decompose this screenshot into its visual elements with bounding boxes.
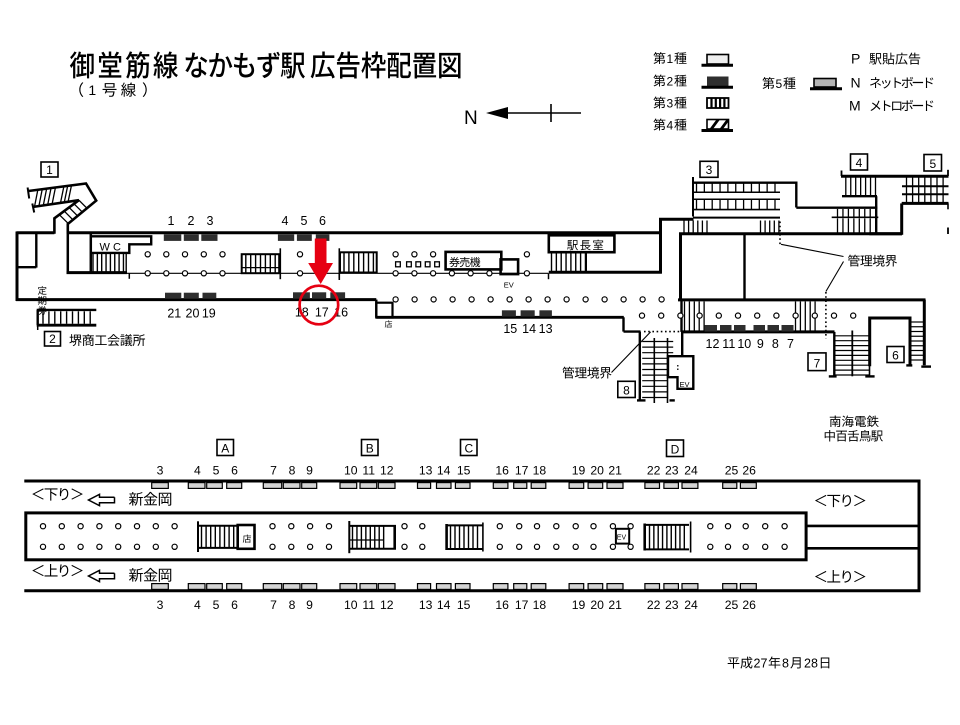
svg-text:2: 2 [49,332,56,346]
svg-text:26: 26 [742,598,756,612]
svg-text:23: 23 [665,598,679,612]
svg-text:7: 7 [270,464,277,478]
svg-text:8: 8 [289,464,296,478]
svg-text:15: 15 [457,464,471,478]
svg-text:EV: EV [680,380,690,389]
svg-text:25: 25 [725,598,739,612]
svg-text:21: 21 [167,307,181,321]
svg-text:3: 3 [667,97,674,111]
svg-text:8: 8 [772,337,779,351]
svg-text:3: 3 [157,598,164,612]
svg-text:24: 24 [684,598,698,612]
svg-text:5: 5 [776,77,783,91]
svg-text:W C: W C [100,242,121,254]
svg-text:21: 21 [608,598,622,612]
svg-text:22: 22 [647,464,661,478]
svg-text:20: 20 [186,307,200,321]
svg-text:A: A [221,441,229,455]
svg-text:21: 21 [608,464,622,478]
svg-text:9: 9 [306,598,313,612]
svg-text:1: 1 [46,163,53,177]
svg-text:4: 4 [194,598,201,612]
svg-text:17: 17 [515,464,529,478]
svg-text:12: 12 [380,464,394,478]
svg-text:B: B [366,441,374,455]
svg-text:11: 11 [722,337,735,351]
svg-text:4: 4 [667,119,674,133]
svg-text:5: 5 [213,464,220,478]
svg-text:C: C [464,441,473,455]
svg-text:8: 8 [289,598,296,612]
svg-text:28: 28 [804,657,818,671]
svg-text:26: 26 [742,464,756,478]
svg-text:D: D [671,442,680,456]
svg-text:15: 15 [457,598,471,612]
svg-text:1: 1 [168,214,175,228]
svg-text:EV: EV [504,281,514,290]
svg-text:12: 12 [380,598,394,612]
svg-text:20: 20 [590,598,604,612]
svg-text:17: 17 [515,598,529,612]
svg-text:20: 20 [590,464,604,478]
svg-text:16: 16 [495,598,509,612]
svg-text:EV: EV [617,535,627,542]
svg-text:13: 13 [419,464,433,478]
svg-text:1: 1 [88,82,96,98]
svg-text:16: 16 [495,464,509,478]
svg-text:19: 19 [572,464,586,478]
svg-text:4: 4 [856,156,863,170]
svg-text:17: 17 [315,306,329,320]
svg-text:8: 8 [623,383,630,397]
svg-text:12: 12 [706,337,720,351]
svg-text:3: 3 [157,464,164,478]
svg-text:14: 14 [522,322,536,336]
svg-text:N: N [851,75,861,91]
svg-text:13: 13 [539,322,553,336]
svg-text:9: 9 [306,464,313,478]
svg-text:10: 10 [344,598,358,612]
svg-text:6: 6 [319,214,326,228]
svg-text:10: 10 [344,464,358,478]
svg-text:19: 19 [572,598,586,612]
svg-text:14: 14 [437,464,451,478]
svg-text:N: N [464,108,478,129]
svg-text:23: 23 [665,464,679,478]
svg-text:2: 2 [188,214,195,228]
svg-text:10: 10 [737,337,751,351]
svg-text:22: 22 [647,598,661,612]
svg-text:7: 7 [814,356,821,370]
svg-text:27: 27 [754,657,768,671]
svg-text:11: 11 [362,464,375,478]
svg-text:5: 5 [301,214,308,228]
svg-text:4: 4 [194,464,201,478]
svg-text:5: 5 [213,598,220,612]
svg-text:14: 14 [437,598,451,612]
svg-text:18: 18 [533,464,547,478]
svg-text:M: M [849,98,861,114]
svg-text:4: 4 [282,214,289,228]
svg-text:19: 19 [202,307,216,321]
svg-text:2: 2 [667,75,674,89]
svg-text:1: 1 [667,52,674,66]
svg-text:5: 5 [929,157,936,171]
svg-text:6: 6 [231,464,238,478]
svg-text:P: P [851,51,860,67]
svg-text:8: 8 [782,657,789,671]
svg-text:25: 25 [725,464,739,478]
svg-text:9: 9 [757,337,764,351]
svg-text:13: 13 [419,598,433,612]
svg-text:3: 3 [207,214,214,228]
svg-text:6: 6 [231,598,238,612]
svg-text:24: 24 [684,464,698,478]
svg-text:7: 7 [787,337,794,351]
svg-text:3: 3 [706,163,713,177]
svg-text:18: 18 [533,598,547,612]
svg-text:7: 7 [270,598,277,612]
svg-text:15: 15 [503,322,517,336]
svg-text:6: 6 [892,348,899,362]
svg-text:11: 11 [362,598,375,612]
